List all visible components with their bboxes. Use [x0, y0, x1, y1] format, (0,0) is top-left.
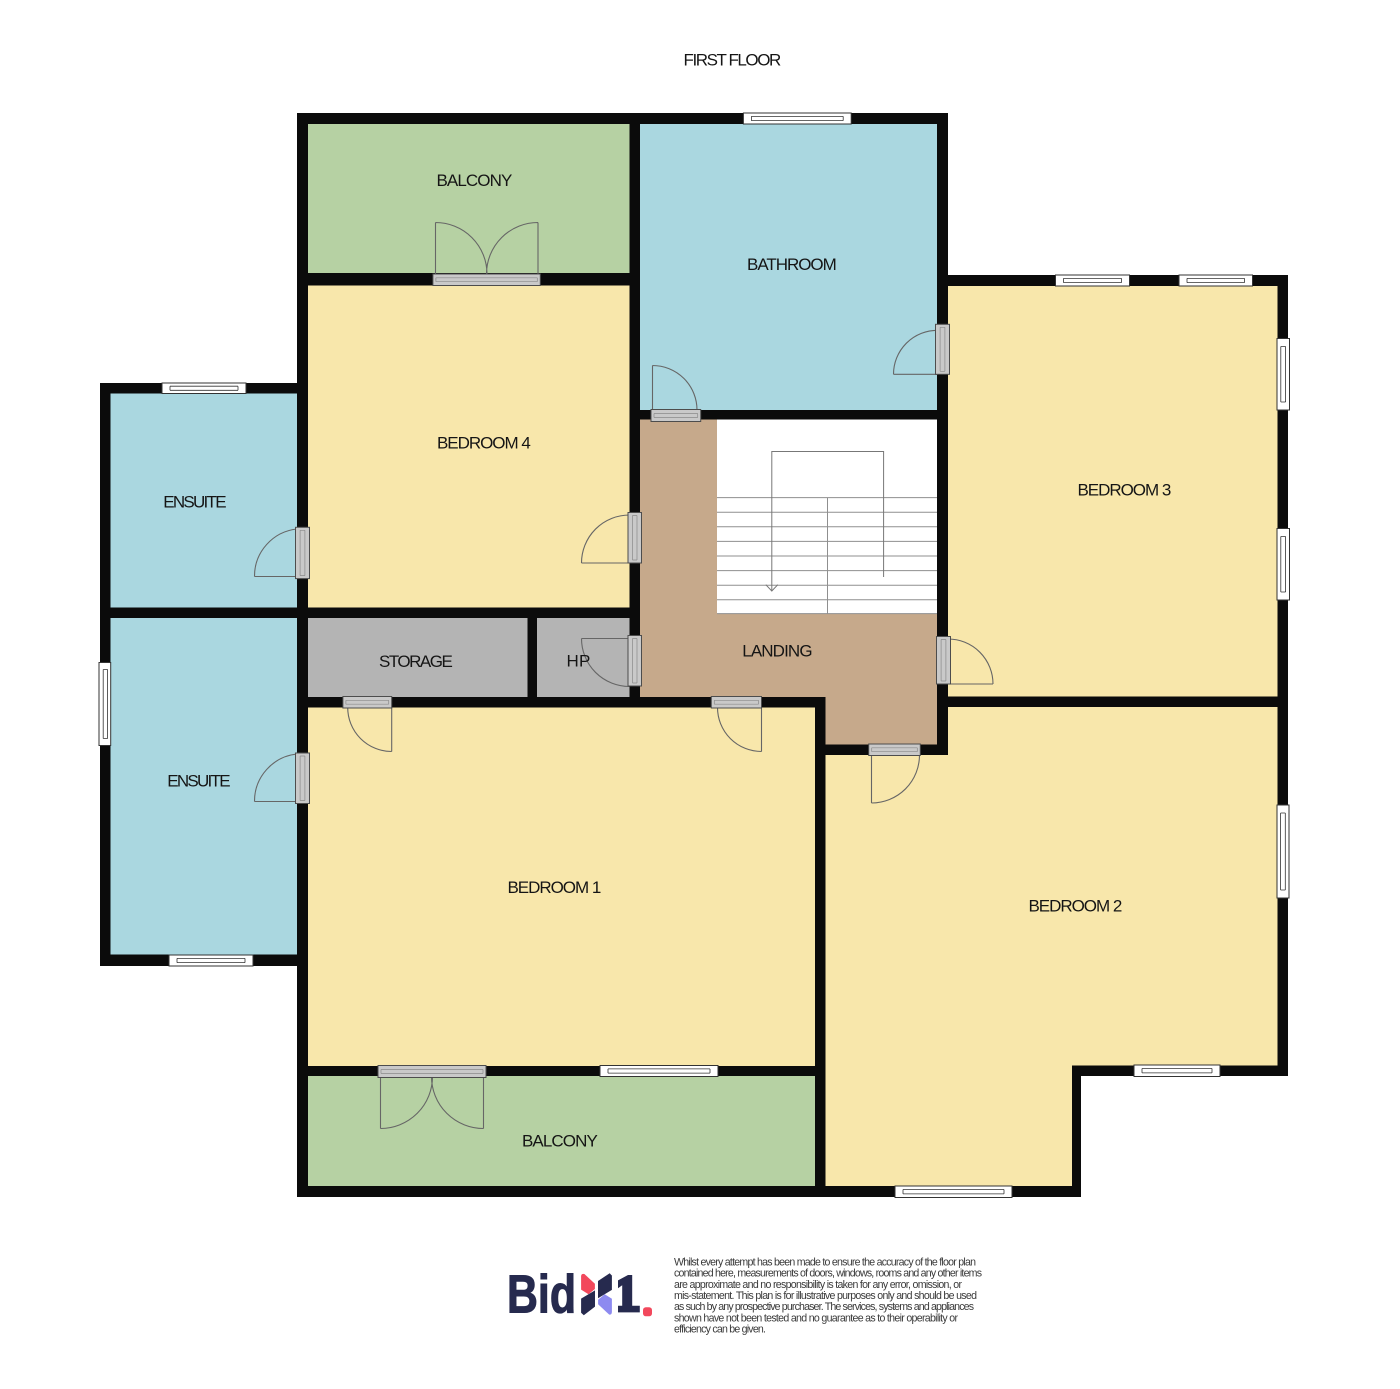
- svg-text:ENSUITE: ENSUITE: [163, 493, 227, 512]
- svg-text:BALCONY: BALCONY: [437, 171, 513, 190]
- svg-text:BATHROOM: BATHROOM: [747, 255, 837, 274]
- svg-text:efficiency can be given.: efficiency can be given.: [674, 1323, 766, 1335]
- svg-text:BEDROOM 2: BEDROOM 2: [1029, 897, 1123, 916]
- svg-text:ENSUITE: ENSUITE: [167, 772, 231, 791]
- svg-text:BEDROOM 4: BEDROOM 4: [437, 434, 531, 453]
- svg-text:BEDROOM 1: BEDROOM 1: [508, 878, 602, 897]
- svg-text:BALCONY: BALCONY: [522, 1132, 598, 1151]
- svg-text:Bid: Bid: [507, 1264, 576, 1324]
- svg-text:HP: HP: [566, 652, 590, 671]
- svg-text:LANDING: LANDING: [742, 642, 813, 661]
- svg-text:FIRST FLOOR: FIRST FLOOR: [684, 51, 782, 70]
- svg-text:BEDROOM 3: BEDROOM 3: [1078, 481, 1172, 500]
- svg-text:STORAGE: STORAGE: [379, 652, 453, 671]
